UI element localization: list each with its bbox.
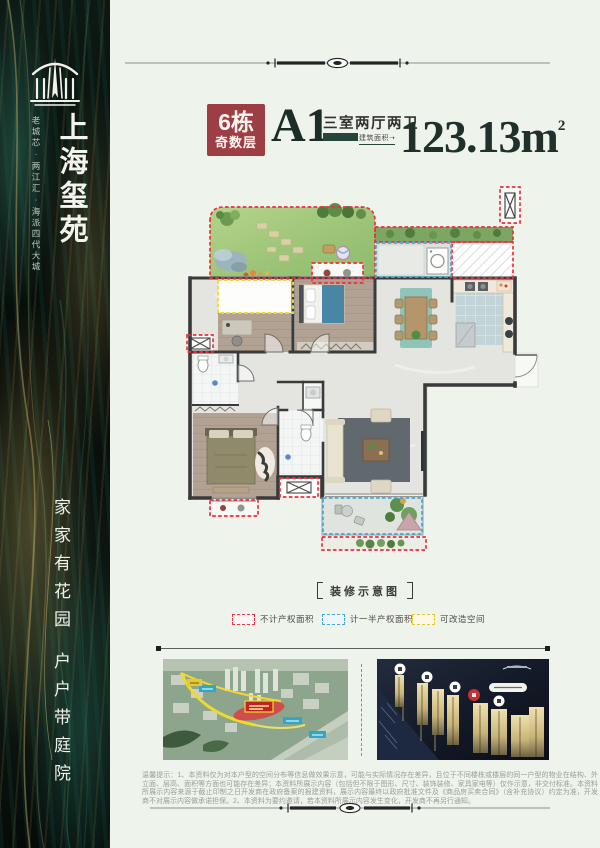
bottom-ornament-rule: [150, 801, 550, 815]
building-badge: 6栋 奇数层: [207, 104, 265, 156]
badge-building-number: 6栋: [207, 109, 265, 135]
location-aerial-photo: [163, 659, 348, 760]
brand-name: 上海玺苑: [50, 112, 92, 248]
header-accent-bar: [323, 133, 358, 141]
legend-label: 可改造空间: [440, 613, 485, 625]
plan-caption: 装修示意图: [300, 582, 430, 599]
caption-bracket-right: [407, 582, 413, 599]
bathroom-1: [193, 353, 238, 405]
legend-swatch-red: [232, 614, 255, 625]
master-bay-window: [210, 500, 258, 516]
legend-label: 计一半产权面积: [350, 613, 413, 625]
floor-plan-graphic: [175, 185, 550, 597]
area-superscript: 2: [558, 118, 566, 134]
slogan-line-1: 家家有花园: [48, 498, 73, 638]
washbasin-niche: [303, 382, 323, 409]
legend-item-half-property-area: 计一半产权面积: [322, 613, 413, 625]
dining-area: [395, 288, 437, 348]
bathroom-2: [278, 410, 323, 477]
area-number: 123.13m: [400, 111, 558, 162]
legend-swatch-yellow: [412, 614, 435, 625]
master-bedroom: [193, 413, 278, 498]
brand-gate-logo-icon: [25, 52, 85, 108]
bedroom-3: [295, 280, 375, 352]
flyer-page: 老城芯·两江汇·海派四代大城 上海玺苑 家家有花园 户户带庭院 6栋 奇数层 A…: [0, 0, 600, 848]
brand-sidebar: 老城芯·两江汇·海派四代大城 上海玺苑 家家有花园 户户带庭院: [0, 0, 110, 848]
legend-item-no-property-area: 不计产权面积: [232, 613, 314, 625]
hedge-strip: [375, 227, 513, 242]
caption-text: 装修示意图: [330, 583, 400, 599]
lower-balcony: [322, 497, 423, 535]
ac-platform-top: [500, 187, 520, 223]
hatched-area: [452, 242, 513, 278]
caption-bracket-left: [317, 582, 323, 599]
project-night-render-photo: [377, 659, 549, 760]
area-value: 123.13m2: [400, 101, 565, 162]
entry-door: [515, 353, 538, 387]
planting-strip: [322, 537, 426, 550]
area-label: 建筑面积➝: [359, 133, 395, 145]
top-ornament-rule: [125, 56, 550, 70]
badge-floor-type: 奇数层: [207, 135, 265, 151]
slogan-line-2: 户户带庭院: [48, 652, 73, 792]
legend-swatch-blue: [322, 614, 345, 625]
legend-item-convertible-space: 可改造空间: [412, 613, 485, 625]
living-room: [325, 409, 425, 493]
bay-window-convertible: [218, 280, 293, 313]
brand-tagline: 老城芯·两江汇·海派四代大城: [30, 116, 42, 273]
laundry-balcony: [375, 242, 452, 278]
photo-divider: [361, 664, 362, 756]
separator-rule: [158, 648, 548, 649]
kitchen: [452, 280, 515, 352]
unit-code: A1: [271, 100, 330, 152]
ac-platform-middle: [280, 478, 318, 497]
legend-label: 不计产权面积: [260, 613, 314, 625]
